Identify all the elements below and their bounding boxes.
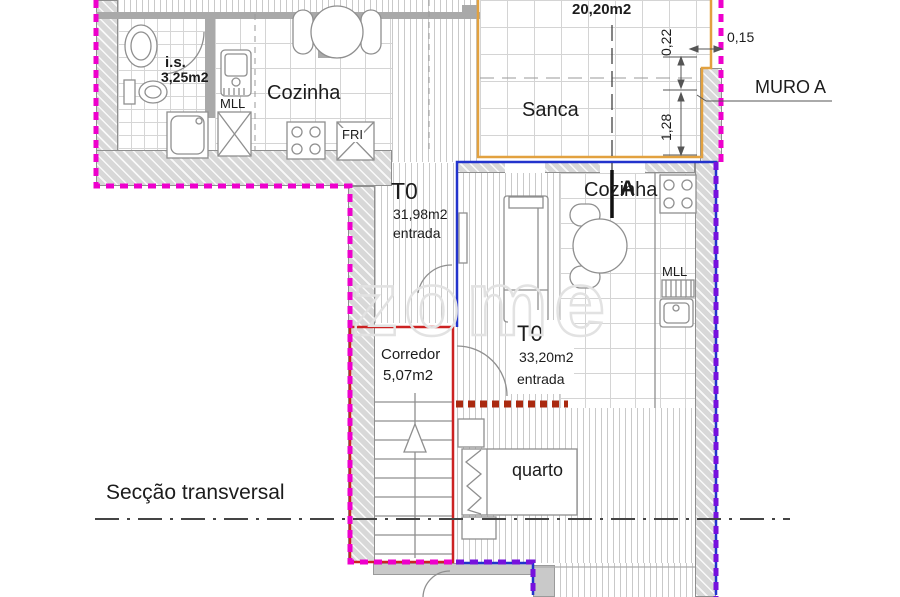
dimension-lines xyxy=(663,46,832,155)
dim-128-label: 1,28 xyxy=(659,114,674,141)
corridor-area-label: 5,07m2 xyxy=(383,368,433,384)
unit-left-area-label: 31,98m2 xyxy=(393,207,447,222)
sink-right-label: MLL xyxy=(662,265,687,279)
watermark: zome xyxy=(352,252,611,357)
bedroom-label: quarto xyxy=(510,461,565,480)
sanca-area-label: 20,20m2 xyxy=(572,2,631,18)
bed-bench-icon xyxy=(462,517,496,539)
bath-sink-icon xyxy=(125,25,157,67)
sink-left-label: MLL xyxy=(220,97,245,111)
section-title-label: Secção transversal xyxy=(106,482,285,504)
unit-left-type-label: T0 xyxy=(391,179,418,203)
kitchen-left-label: Cozinha xyxy=(267,83,340,104)
drain-rack-icon xyxy=(662,280,694,297)
dim-015-label: 0,15 xyxy=(727,30,754,45)
bathroom-area-label: 3,25m2 xyxy=(161,70,208,85)
stove-left-icon xyxy=(287,122,325,159)
bottom-door-arc xyxy=(423,571,450,597)
unit-left-entry-label: entrada xyxy=(393,226,440,241)
section-marker-label: A xyxy=(620,178,635,200)
toilet-tank-icon xyxy=(124,80,135,104)
table-left-icon xyxy=(311,6,363,58)
chair-left-icon xyxy=(293,10,313,54)
sanca-label: Sanca xyxy=(522,100,579,121)
nightstand-icon xyxy=(458,419,484,447)
stair-arrow-icon xyxy=(404,424,426,452)
floor-plan: 20,20m2 Sanca i.s. 3,25m2 MLL Cozinha FR… xyxy=(0,0,900,597)
muro-a-label: MURO A xyxy=(755,78,826,97)
chair-right-icon xyxy=(361,10,381,54)
dim-022-label: 0,22 xyxy=(659,29,674,56)
fridge-label: FRI xyxy=(341,128,364,142)
bed-icon xyxy=(462,449,577,515)
unit-right-entry-label: entrada xyxy=(517,372,564,387)
